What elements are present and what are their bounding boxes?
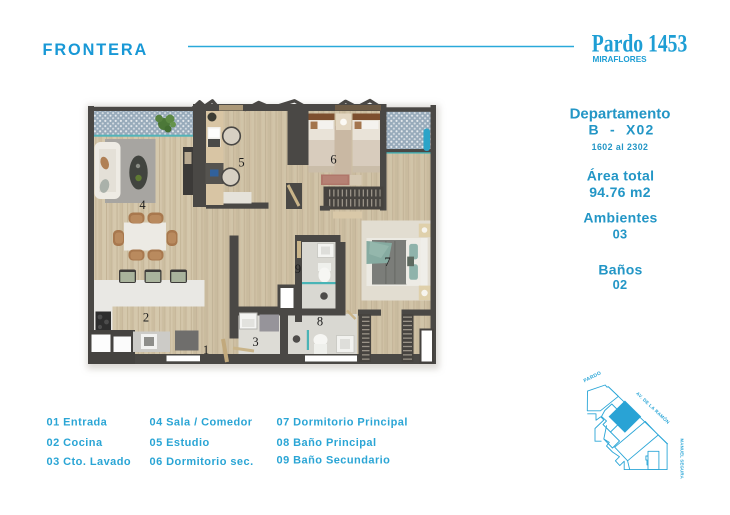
svg-text:06 Dormitorio sec.: 06 Dormitorio sec. [150, 456, 254, 468]
svg-text:08 Baño Principal: 08 Baño Principal [277, 437, 377, 449]
svg-text:05 Estudio: 05 Estudio [150, 437, 210, 449]
svg-text:07 Dormitorio Principal: 07 Dormitorio Principal [277, 417, 408, 429]
svg-text:09 Baño Secundario: 09 Baño Secundario [277, 455, 391, 467]
svg-text:02 Cocina: 02 Cocina [47, 437, 103, 449]
svg-text:94.76 m2: 94.76 m2 [589, 184, 651, 200]
svg-text:FRONTERA: FRONTERA [43, 41, 149, 59]
svg-text:Pardo 1453: Pardo 1453 [592, 29, 688, 58]
svg-text:03 Cto. Lavado: 03 Cto. Lavado [47, 456, 132, 468]
svg-text:Baños: Baños [598, 262, 642, 278]
svg-text:4: 4 [139, 198, 146, 212]
svg-text:Ambientes: Ambientes [583, 210, 657, 226]
svg-text:2: 2 [143, 311, 149, 325]
svg-text:1602 al 2302: 1602 al 2302 [592, 142, 649, 152]
svg-text:Departamento: Departamento [570, 106, 671, 123]
svg-text:02: 02 [613, 277, 628, 292]
svg-text:MIRAFLORES: MIRAFLORES [593, 55, 648, 64]
svg-text:04 Sala / Comedor: 04 Sala / Comedor [150, 417, 253, 429]
svg-text:6: 6 [330, 153, 336, 167]
svg-text:Área total: Área total [587, 168, 655, 184]
svg-text:03: 03 [613, 227, 628, 242]
svg-text:8: 8 [317, 315, 323, 329]
svg-text:01 Entrada: 01 Entrada [47, 417, 108, 429]
svg-text:1: 1 [203, 343, 209, 357]
svg-text:B - X02: B - X02 [588, 122, 654, 138]
svg-text:3: 3 [252, 335, 258, 349]
svg-text:MANUEL SEGURA: MANUEL SEGURA [680, 439, 685, 479]
svg-text:7: 7 [384, 255, 390, 269]
svg-text:5: 5 [238, 156, 244, 170]
svg-text:9: 9 [295, 262, 301, 276]
